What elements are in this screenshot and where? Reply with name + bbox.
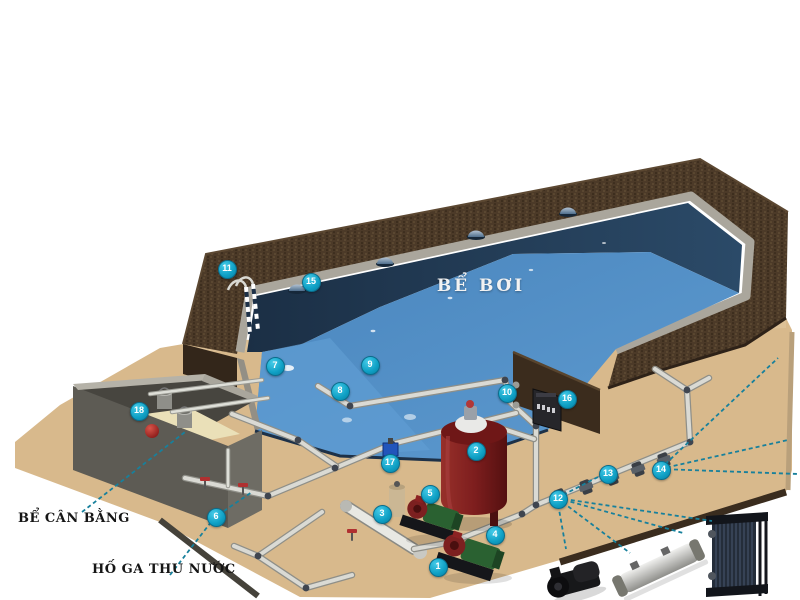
collection-pit-label: HỐ GA THU NƯỚC — [92, 562, 236, 577]
pool-system-diagram: BỂ BƠI BỂ CÂN BẰNG HỐ GA THU NƯỚC 123456… — [0, 0, 800, 600]
balance-tank-label: BỂ CÂN BẰNG — [18, 511, 130, 526]
balance-tank — [73, 374, 262, 528]
chemical-feeder — [389, 481, 405, 517]
float-ball — [145, 424, 159, 438]
scene-canvas — [0, 0, 800, 600]
pool-title: BỂ BƠI — [437, 276, 525, 296]
booster-pump — [543, 556, 608, 600]
control-panel — [533, 389, 561, 431]
plate-heat-exchanger — [706, 512, 768, 597]
